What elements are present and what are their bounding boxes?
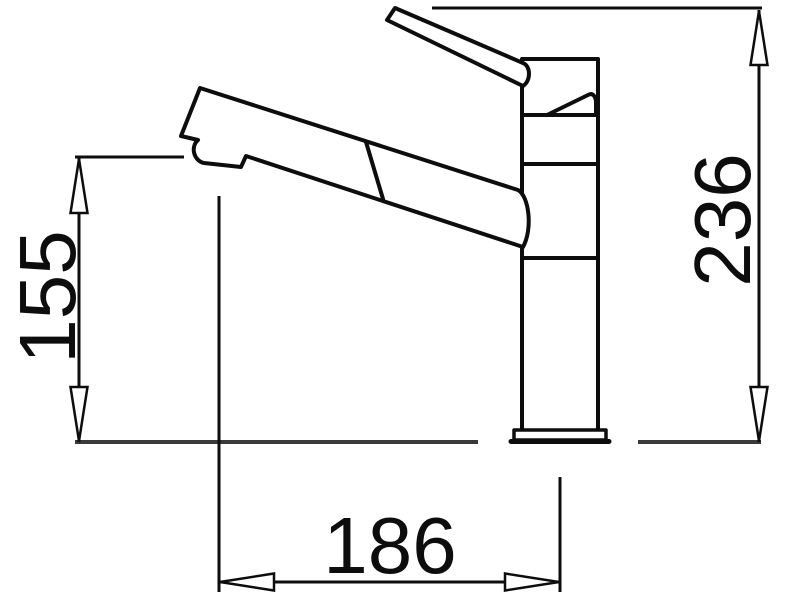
faucet-base-flange [514, 430, 606, 440]
dim-label-overall-height: 236 [678, 153, 767, 286]
faucet-dimension-drawing: 155 236 186 [0, 0, 792, 600]
dimension-labels: 155 236 186 [3, 153, 767, 590]
faucet-handle [387, 8, 529, 86]
faucet-drawing [181, 8, 609, 442]
faucet-spout [181, 88, 529, 247]
dim-label-spout-height: 155 [3, 230, 92, 363]
dim-label-spout-reach: 186 [323, 501, 456, 590]
arrowhead-236-down [751, 387, 768, 441]
arrowhead-236-up [751, 11, 768, 65]
drawing-canvas: 155 236 186 [0, 0, 792, 600]
arrowhead-186-right [505, 574, 559, 591]
arrowhead-155-up [71, 159, 88, 213]
arrowhead-186-left [220, 574, 274, 591]
arrowhead-155-down [71, 387, 88, 441]
